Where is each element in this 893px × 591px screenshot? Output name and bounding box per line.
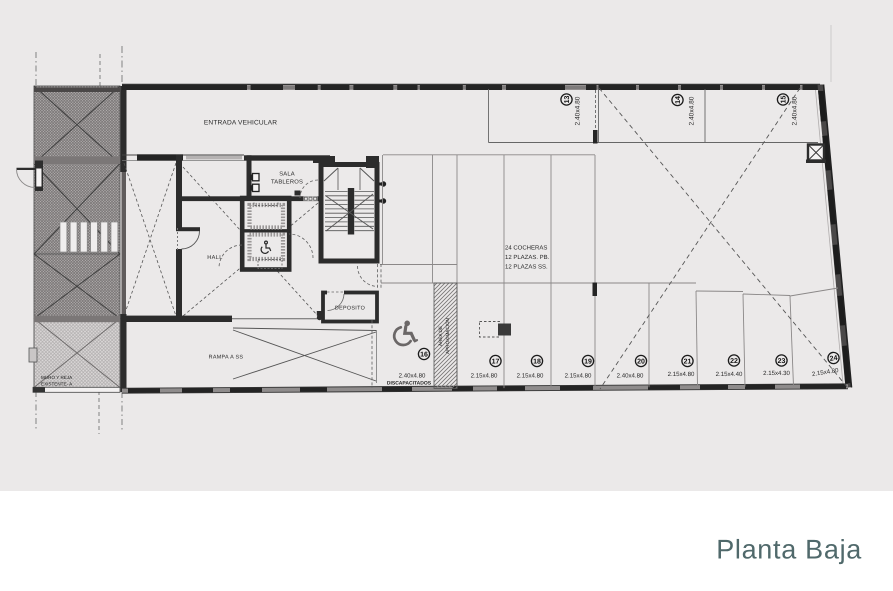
svg-text:24: 24	[829, 355, 838, 363]
svg-text:2.40x4.80: 2.40x4.80	[689, 96, 696, 125]
svg-text:DISCAPACITADOS: DISCAPACITADOS	[387, 381, 432, 387]
svg-text:RAMPA A SS: RAMPA A SS	[209, 355, 244, 361]
svg-text:17: 17	[492, 358, 500, 365]
svg-text:2.40x4.80: 2.40x4.80	[575, 96, 582, 125]
svg-text:23: 23	[778, 358, 786, 365]
svg-text:2.15x4.80: 2.15x4.80	[471, 373, 498, 380]
svg-text:2.40x4.80: 2.40x4.80	[792, 96, 799, 125]
svg-text:14: 14	[675, 96, 682, 104]
svg-text:12 PLAZAS SS.: 12 PLAZAS SS.	[505, 264, 548, 271]
svg-text:2.40x4.80: 2.40x4.80	[617, 373, 644, 380]
svg-text:18: 18	[533, 358, 541, 365]
svg-text:DEPOSITO: DEPOSITO	[335, 306, 365, 312]
svg-text:2.15x4.80: 2.15x4.80	[668, 371, 695, 378]
svg-text:22: 22	[730, 358, 738, 365]
svg-text:APROXIMACIÓN: APROXIMACIÓN	[445, 318, 450, 354]
svg-text:20: 20	[637, 358, 645, 365]
svg-text:EXISTENTE- A: EXISTENTE- A	[41, 382, 73, 387]
svg-text:ENTRADA VEHICULAR: ENTRADA VEHICULAR	[204, 120, 277, 127]
svg-text:24 COCHERAS: 24 COCHERAS	[505, 245, 547, 252]
svg-text:19: 19	[584, 358, 592, 365]
svg-text:2.40x4.80: 2.40x4.80	[399, 373, 426, 380]
svg-text:15: 15	[780, 96, 787, 104]
svg-text:13: 13	[564, 96, 571, 104]
svg-text:21: 21	[684, 358, 692, 365]
svg-text:2.15x4.80: 2.15x4.80	[565, 373, 592, 380]
svg-text:2.15x4.80: 2.15x4.80	[517, 373, 544, 380]
svg-text:ÁREA DE: ÁREA DE	[438, 326, 443, 346]
svg-text:2.15x4.30: 2.15x4.30	[763, 370, 790, 377]
svg-text:16: 16	[420, 351, 428, 358]
svg-text:SALA: SALA	[279, 171, 295, 178]
svg-text:Planta Baja: Planta Baja	[716, 535, 862, 565]
svg-text:MURO Y REJA: MURO Y REJA	[41, 375, 73, 380]
svg-text:2.15x4.40: 2.15x4.40	[716, 371, 743, 378]
svg-text:TABLEROS: TABLEROS	[271, 179, 303, 186]
svg-text:12 PLAZAS. PB.: 12 PLAZAS. PB.	[505, 254, 550, 261]
